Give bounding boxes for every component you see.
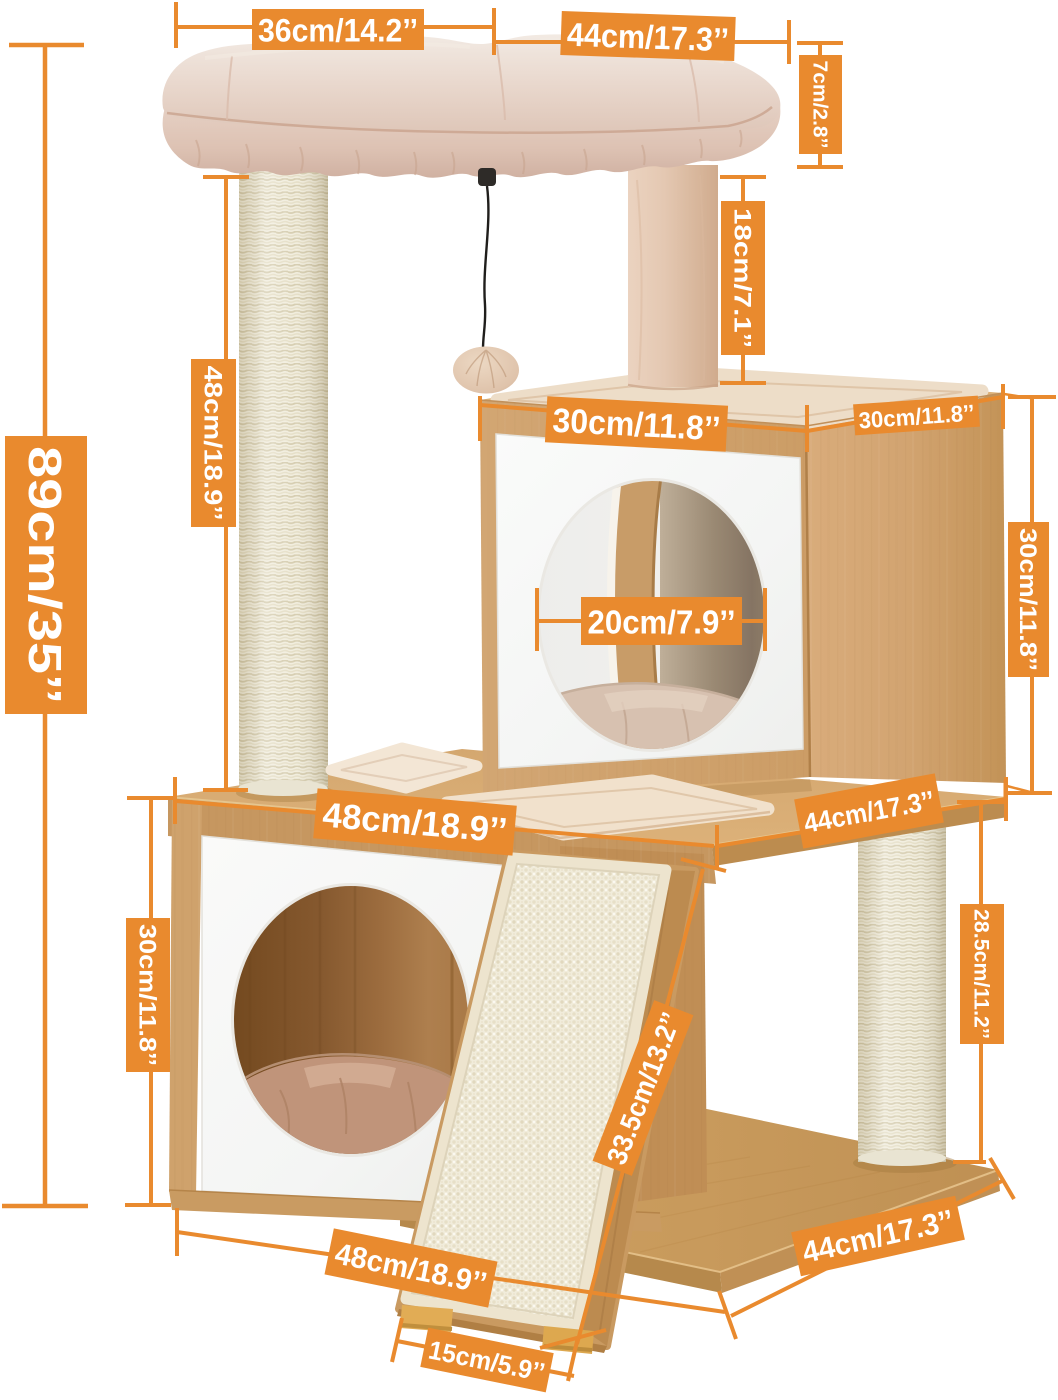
- svg-text:89cm/35’’: 89cm/35’’: [19, 446, 71, 704]
- svg-text:44cm/17.3’’: 44cm/17.3’’: [566, 16, 729, 59]
- svg-text:28.5cm/11.2’’: 28.5cm/11.2’’: [970, 909, 993, 1039]
- svg-text:30cm/11.8’’: 30cm/11.8’’: [134, 924, 161, 1066]
- svg-text:7cm/2.8’’: 7cm/2.8’’: [809, 61, 831, 149]
- svg-text:48cm/18.9’’: 48cm/18.9’’: [199, 366, 227, 521]
- svg-text:20cm/7.9’’: 20cm/7.9’’: [588, 604, 736, 641]
- svg-text:36cm/14.2’’: 36cm/14.2’’: [258, 13, 418, 49]
- svg-text:30cm/11.8’’: 30cm/11.8’’: [1014, 528, 1041, 671]
- svg-text:18cm/7.1’’: 18cm/7.1’’: [729, 208, 756, 348]
